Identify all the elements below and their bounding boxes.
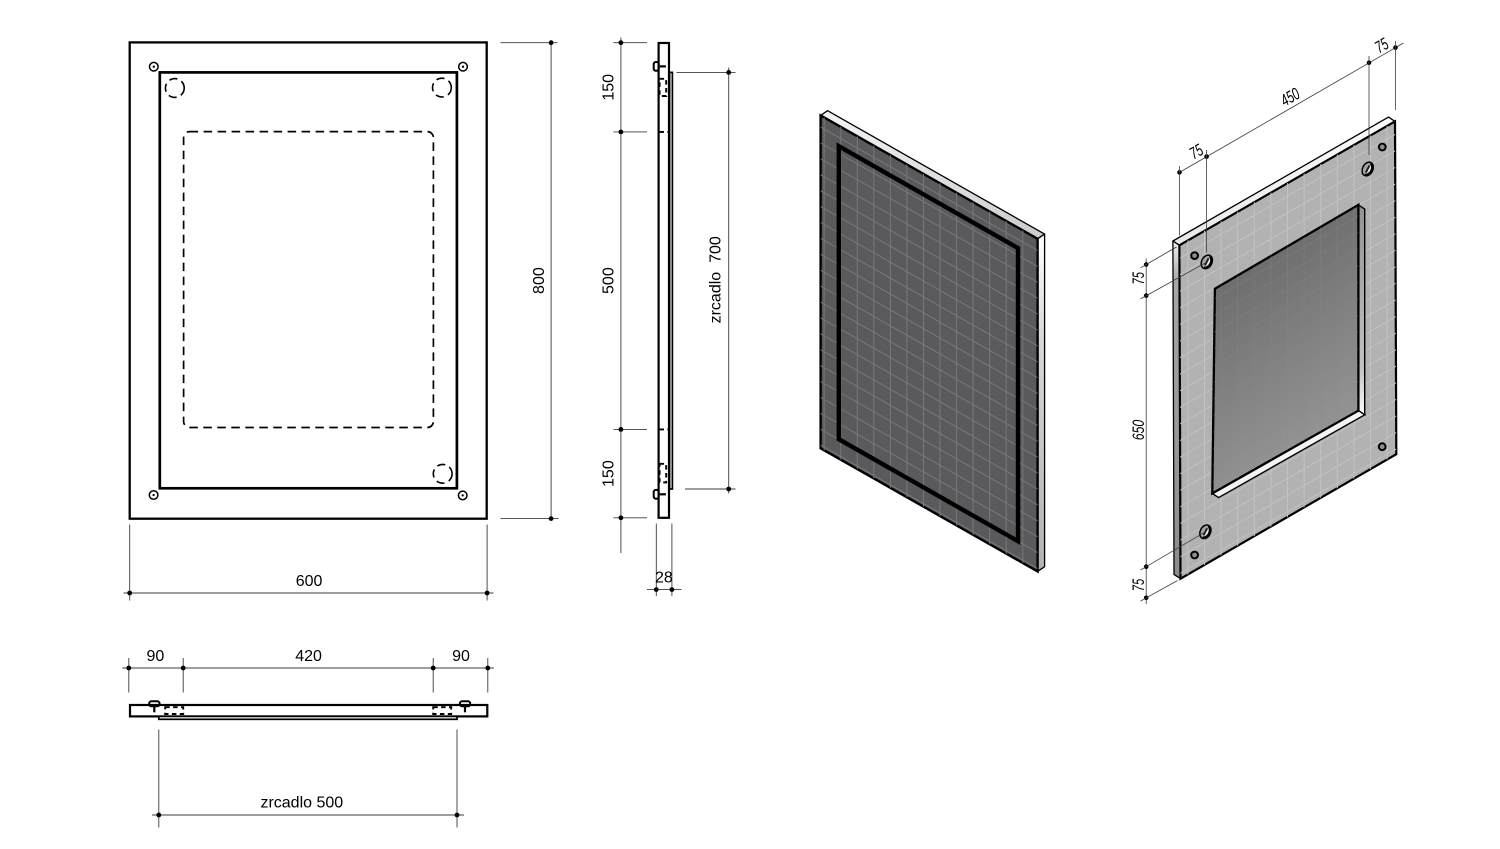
svg-text:420: 420	[295, 648, 322, 665]
svg-text:800: 800	[531, 267, 548, 294]
svg-text:75: 75	[1129, 578, 1148, 591]
svg-text:90: 90	[452, 648, 470, 665]
svg-text:600: 600	[296, 573, 323, 590]
svg-text:90: 90	[147, 648, 165, 665]
svg-text:zrcadlo 700: zrcadlo 700	[707, 236, 724, 323]
svg-text:zrcadlo 500: zrcadlo 500	[260, 794, 343, 811]
svg-text:500: 500	[600, 267, 617, 294]
svg-text:650: 650	[1129, 419, 1148, 440]
svg-text:28: 28	[655, 569, 673, 586]
svg-text:150: 150	[600, 74, 617, 101]
svg-text:75: 75	[1129, 272, 1148, 285]
svg-text:150: 150	[600, 460, 617, 487]
